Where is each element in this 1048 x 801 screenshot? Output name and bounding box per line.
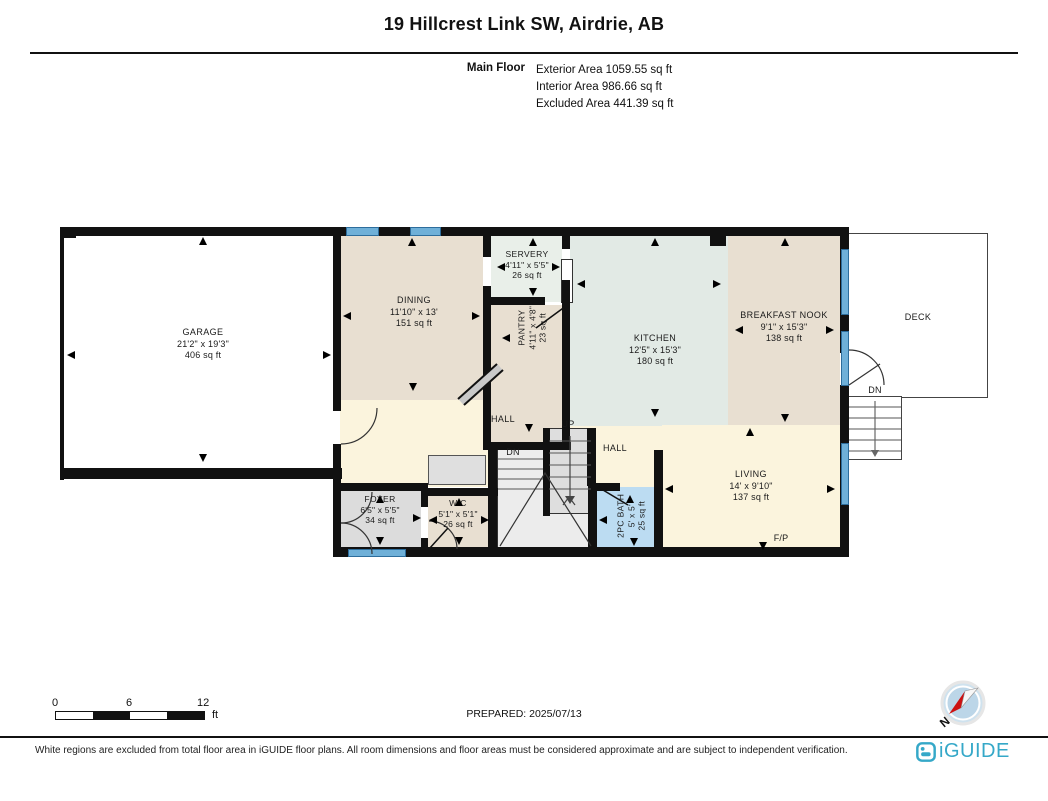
dimension-arrow [529, 288, 537, 296]
stairs-up-flight [548, 428, 592, 514]
footer-disclaimer: White regions are excluded from total fl… [35, 745, 875, 756]
dimension-arrow [67, 351, 75, 359]
living-area: 137 sq ft [687, 492, 815, 504]
dimension-arrow [630, 538, 638, 546]
room-kitchen [570, 236, 728, 426]
deck-stairs [848, 396, 902, 460]
dimension-arrow [472, 312, 480, 320]
dimension-arrow [626, 495, 634, 503]
dimension-arrow [826, 326, 834, 334]
kitchen-area: 180 sq ft [595, 356, 715, 368]
pantry-label: PANTRY 4'11" x 4'8" 23 sq ft [516, 295, 548, 361]
prepared-date: PREPARED: 2025/07/13 [0, 708, 1048, 720]
dining-label: DINING 11'10" x 13' 151 sq ft [353, 295, 475, 330]
garage-label: GARAGE 21'2" x 19'3" 406 sq ft [123, 327, 283, 362]
wall [562, 280, 570, 305]
garage-dims: 21'2" x 19'3" [123, 339, 283, 351]
wall [483, 227, 491, 257]
dining-name: DINING [353, 295, 475, 307]
wall [562, 227, 570, 249]
dimension-arrow [497, 263, 505, 271]
interior-area: Interior Area 986.66 sq ft [536, 79, 673, 96]
dimension-arrow [759, 542, 767, 550]
deck-name: DECK [888, 312, 948, 324]
dimension-arrow [199, 454, 207, 462]
kitchen-label: KITCHEN 12'5" x 15'3" 180 sq ft [595, 333, 715, 368]
dimension-arrow [746, 428, 754, 436]
wall [60, 227, 64, 480]
floor-label: Main Floor [380, 62, 525, 74]
window [346, 227, 379, 236]
dimension-arrow [343, 312, 351, 320]
dimension-arrow [827, 485, 835, 493]
servery-name: SERVERY [495, 249, 559, 260]
wall [588, 483, 597, 549]
deck-label: DECK [888, 312, 948, 324]
dining-dims: 11'10" x 13' [353, 307, 475, 319]
dining-area: 151 sq ft [353, 318, 475, 330]
dimension-arrow [651, 409, 659, 417]
foyer-dims: 6'5" x 5'5" [341, 505, 419, 516]
wall [543, 428, 550, 516]
brand-name: iGUIDE [939, 740, 1010, 763]
fireplace-text: F/P [763, 533, 799, 545]
dimension-arrow [376, 537, 384, 545]
hall2-label: HALL [591, 443, 639, 455]
dimension-arrow [735, 326, 743, 334]
breakfast-nook-name: BREAKFAST NOOK [720, 310, 848, 322]
pantry-dims: 4'11" x 4'8" [527, 295, 538, 361]
floor-plan-page: { "header": { "title": "19 Hillcrest Lin… [0, 0, 1048, 801]
bath-name: 2PC BATH [615, 486, 626, 546]
dimension-arrow [665, 485, 673, 493]
garage-area: 406 sq ft [123, 350, 283, 362]
fireplace-label: F/P [763, 533, 799, 545]
living-label: LIVING 14' x 9'10" 137 sq ft [687, 469, 815, 504]
dimension-arrow [577, 280, 585, 288]
dimension-arrow [529, 238, 537, 246]
dimension-arrow [781, 414, 789, 422]
area-stats: Exterior Area 1059.55 sq ft Interior Are… [536, 62, 673, 113]
dn-label: DN [495, 447, 531, 459]
window [841, 249, 849, 315]
window [410, 227, 441, 236]
bath-area: 25 sq ft [636, 486, 647, 546]
dimension-arrow [651, 238, 659, 246]
dn-text: DN [495, 447, 531, 459]
dimension-arrow [713, 280, 721, 288]
dimension-arrow [413, 514, 421, 522]
wall [333, 227, 341, 411]
dimension-arrow [323, 351, 331, 359]
kitchen-name: KITCHEN [595, 333, 715, 345]
hall2-name: HALL [591, 443, 639, 455]
dimension-arrow [552, 263, 560, 271]
up-text: UP [550, 419, 586, 431]
deck-dn-label: DN [858, 385, 892, 397]
wall [710, 230, 726, 246]
window [348, 549, 406, 557]
wall [60, 468, 342, 479]
footer-divider [0, 736, 1048, 738]
dimension-arrow [525, 424, 533, 432]
dimension-arrow [199, 237, 207, 245]
living-name: LIVING [687, 469, 815, 481]
compass-icon: N [937, 682, 984, 730]
title-divider [30, 52, 1018, 54]
breakfast-nook-area: 138 sq ft [720, 333, 848, 345]
window [841, 443, 849, 505]
wall [421, 538, 428, 557]
brand-logo: iGUIDE [916, 740, 1010, 763]
under-stair-closet [428, 455, 486, 485]
pantry-name: PANTRY [516, 295, 527, 361]
wall [654, 450, 663, 549]
hall-name: HALL [478, 414, 528, 426]
excluded-area: Excluded Area 441.39 sq ft [536, 96, 673, 113]
pantry-area: 23 sq ft [537, 295, 548, 361]
dimension-arrow [502, 334, 510, 342]
garage-name: GARAGE [123, 327, 283, 339]
dimension-arrow [599, 516, 607, 524]
foyer-area: 34 sq ft [341, 515, 419, 526]
wall [333, 483, 428, 491]
wall [60, 227, 76, 238]
hall-label: HALL [478, 414, 528, 426]
dimension-arrow [408, 238, 416, 246]
up-label: UP [550, 419, 586, 431]
dimension-arrow [781, 238, 789, 246]
servery-area: 26 sq ft [495, 270, 559, 281]
wall [333, 444, 341, 557]
dimension-arrow [429, 516, 437, 524]
exterior-area: Exterior Area 1059.55 sq ft [536, 62, 673, 79]
deck-dn-text: DN [858, 385, 892, 397]
wall [60, 227, 341, 236]
dimension-arrow [481, 516, 489, 524]
dimension-arrow [376, 495, 384, 503]
living-dims: 14' x 9'10" [687, 481, 815, 493]
page-title: 19 Hillcrest Link SW, Airdrie, AB [0, 14, 1048, 35]
dimension-arrow [455, 537, 463, 545]
wall [587, 428, 596, 486]
iguide-icon [916, 742, 936, 762]
kitchen-dims: 12'5" x 15'3" [595, 345, 715, 357]
dimension-arrow [455, 498, 463, 506]
dimension-arrow [409, 383, 417, 391]
